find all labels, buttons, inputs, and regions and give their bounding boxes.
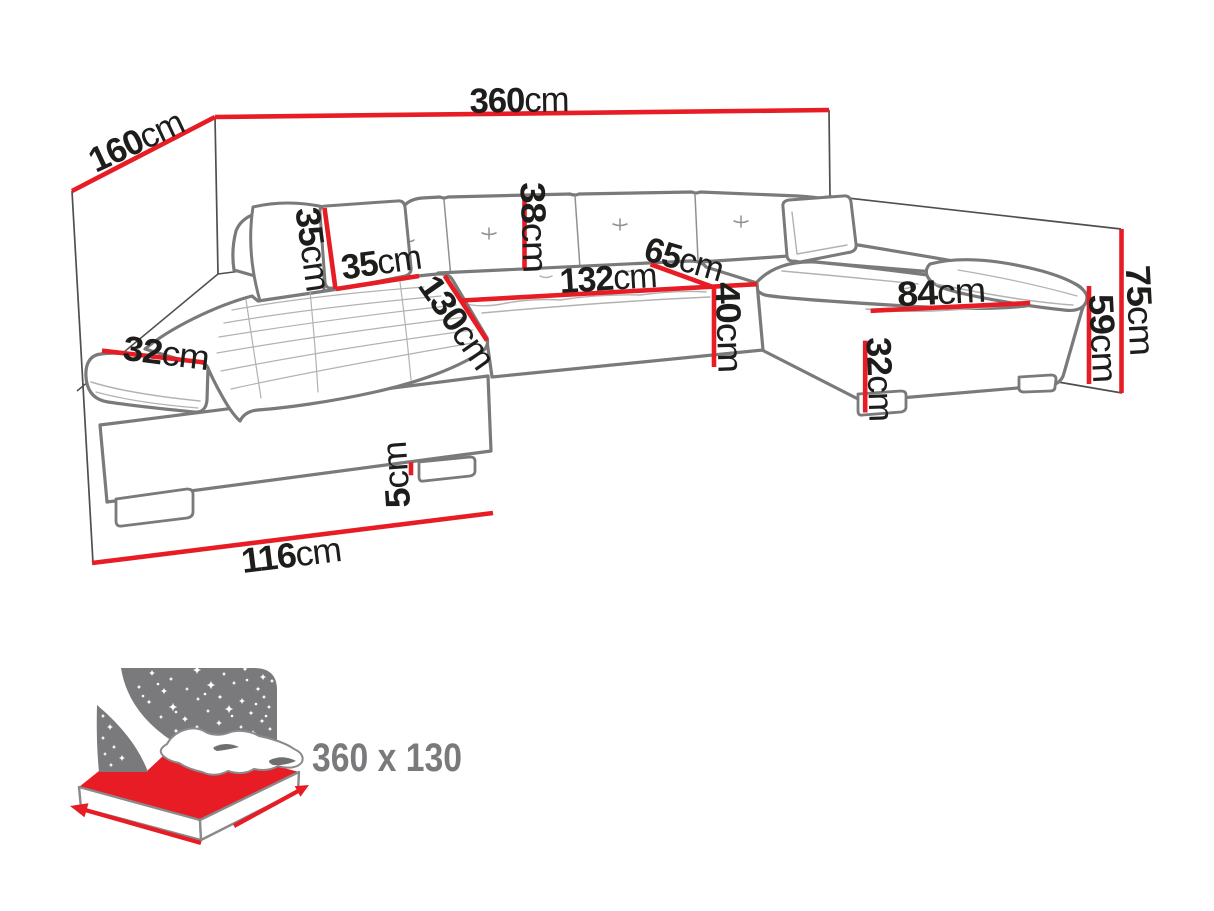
svg-text:360cm: 360cm	[469, 80, 569, 121]
svg-text:75cm: 75cm	[1118, 264, 1162, 356]
svg-text:5cm: 5cm	[375, 441, 419, 510]
svg-text:32cm: 32cm	[859, 336, 901, 421]
svg-text:40cm: 40cm	[707, 281, 749, 372]
svg-text:360 x 130: 360 x 130	[312, 736, 462, 780]
svg-text:38cm: 38cm	[512, 181, 554, 272]
svg-text:132cm: 132cm	[558, 256, 657, 301]
svg-text:84cm: 84cm	[896, 271, 986, 315]
svg-text:59cm: 59cm	[1081, 293, 1125, 383]
